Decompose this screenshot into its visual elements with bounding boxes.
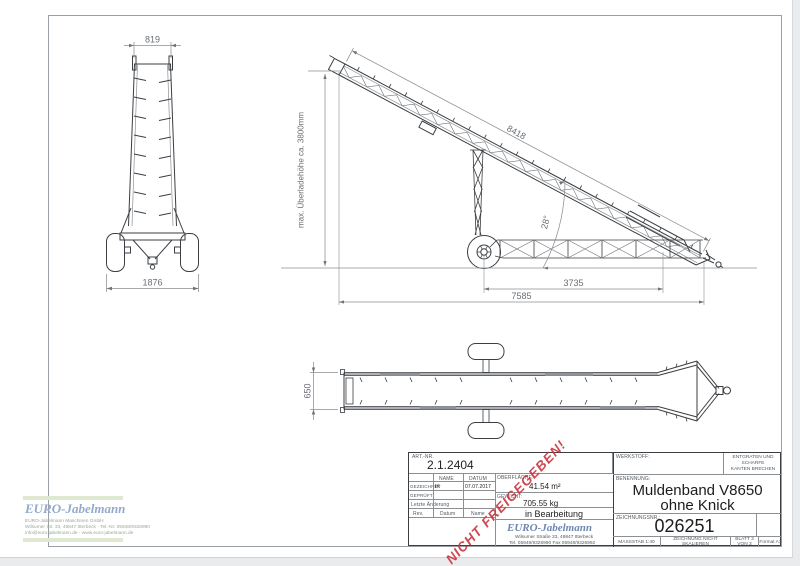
side-belt-length-value: 8418 xyxy=(505,123,527,141)
art-nr-value: 2.1.2404 xyxy=(427,458,474,472)
discharge-hook xyxy=(330,56,335,59)
dimension-7585: 7585 xyxy=(339,72,704,305)
wheel-front-right xyxy=(181,234,199,272)
entgraten-line2: KANTEN BRECHEN xyxy=(731,467,775,472)
watermark-bar-top xyxy=(23,496,123,500)
intake-hopper-side xyxy=(626,205,710,265)
tow-hook-front xyxy=(150,265,154,269)
format-cell: Format A3 xyxy=(759,537,782,547)
gezeichnet-name: IK xyxy=(435,484,440,490)
support-mast xyxy=(470,150,486,235)
chassis-front xyxy=(120,208,185,269)
drawing-number-value: 026251 xyxy=(613,516,756,537)
blatt-value: BLATT 3 VON 3 xyxy=(731,537,758,547)
tail-pulley-top xyxy=(341,370,354,413)
geprueft-label: GEPRÜFT xyxy=(410,493,433,498)
watermark-company: EURO-Jabelmann Maschinen GmbH xyxy=(25,519,104,524)
belt-cleats-top xyxy=(360,378,637,405)
belt-cleats-front xyxy=(134,78,171,216)
col-name-label: NAME xyxy=(439,476,454,482)
belt-band-side xyxy=(339,64,702,265)
part-name-line2: ohne Knick xyxy=(613,497,782,513)
wheel-top-upper xyxy=(468,344,504,360)
datum-label: Datum xyxy=(440,511,455,517)
entgraten-line1: ENTGRATEN UND SCHARFE xyxy=(733,455,774,466)
nicht-skalieren-cell: ZEICHNUNG NICHT SKALIEREN xyxy=(661,537,731,547)
col-datum-label: DATUM xyxy=(469,476,487,482)
sig-col-divider-2 xyxy=(463,474,464,518)
werkstoff-label: WERKSTOFF: xyxy=(616,454,650,460)
dimension-unload-height: max. Überladehöhe ca. 3800mm xyxy=(297,71,343,266)
zeichnungsnr-divider xyxy=(756,514,757,537)
nicht-skalieren-note: ZEICHNUNG NICHT SKALIEREN xyxy=(661,537,730,547)
wheel-top-lower xyxy=(468,423,504,439)
front-view: 819 1876 xyxy=(107,35,199,293)
belt-cleats-side xyxy=(357,67,692,248)
massstab-cell: MASSSTAB 1:40 xyxy=(613,537,661,547)
tb-logo-cell: EURO-Jabelmann Wilsumer Straße 33, 49847… xyxy=(495,520,613,547)
conveyor-rails xyxy=(129,64,177,226)
dimension-650: 650 xyxy=(303,362,339,420)
watermark-address: Wilsumer Str. 33, 49847 Itterbeck · Tel.… xyxy=(25,525,150,530)
title-block: ART.-NR. 2.1.2404 NAME DATUM GEZEICHNET … xyxy=(408,452,781,546)
watermark-web: info@euro-jabelmann.de · www.euro-jabelm… xyxy=(25,531,133,536)
side-total-span-value: 7585 xyxy=(511,291,531,301)
watermark-bar-bottom xyxy=(23,538,123,542)
axle-stub-lower xyxy=(483,410,489,423)
technical-drawing-page: 819 1876 xyxy=(0,0,800,566)
art-nr-cell: ART.-NR. 2.1.2404 xyxy=(409,453,613,474)
gezeichnet-row: GEZEICHNET IK 07.07.2017 xyxy=(409,482,495,491)
discharge-head xyxy=(329,58,346,75)
letzte-aenderung-label: Letzte Änderung xyxy=(411,502,449,508)
werkstoff-cell: WERKSTOFF: ENTGRATEN UND SCHARFE KANTEN … xyxy=(613,453,782,475)
dimension-819: 819 xyxy=(124,35,181,59)
watermark-logo: EURO-Jabelmann xyxy=(25,501,125,517)
wheel-front-left xyxy=(107,234,125,272)
intake-hopper-top xyxy=(658,361,731,422)
gezeichnet-datum: 07.07.2017 xyxy=(465,484,491,490)
dimension-8418: 8418 xyxy=(346,48,710,251)
massstab-value: MASSSTAB 1:40 xyxy=(618,540,654,545)
front-top-width-value: 819 xyxy=(145,35,160,45)
company-logo: EURO-Jabelmann xyxy=(507,522,592,534)
status-value: in Bearbeitung xyxy=(525,509,583,519)
rev-label: Rev. xyxy=(413,511,423,517)
axle-stub-upper xyxy=(483,360,489,373)
zeichnungsnr-cell: ZEICHNUNGSNR.: 026251 xyxy=(613,514,782,537)
front-track-width-value: 1876 xyxy=(142,278,162,288)
dimension-1876: 1876 xyxy=(107,274,199,292)
entgraten-note: ENTGRATEN UND SCHARFE KANTEN BRECHEN xyxy=(723,453,782,475)
side-mid-span-value: 3735 xyxy=(563,278,583,288)
side-incline-angle-value: 28° xyxy=(539,214,552,230)
company-phone: Tel. 05948/9326990 Fax 05948/9326992 xyxy=(509,541,595,547)
belt-band-top xyxy=(344,373,658,410)
side-unload-height-value: max. Überladehöhe ca. 3800mm xyxy=(297,112,306,228)
letzte-aenderung-row: Letzte Änderung xyxy=(409,500,495,509)
top-belt-width-value: 650 xyxy=(303,383,313,398)
blatt-cell: BLATT 3 VON 3 xyxy=(731,537,759,547)
benennung-cell: BENENNUNG: Muldenband V8650 ohne Knick xyxy=(613,475,782,514)
geprueft-row: GEPRÜFT xyxy=(409,491,495,500)
side-view: 8418 max. Überladehöhe ca. 3800mm 28° xyxy=(281,48,757,305)
sig-header-row: NAME DATUM xyxy=(409,474,495,482)
belt-truss-lattice xyxy=(344,67,679,247)
dimension-angle-28: 28° xyxy=(539,181,565,270)
tow-eye-top xyxy=(724,387,731,394)
sig-col-divider-1 xyxy=(433,474,434,518)
gewicht-value: 705.55 kg xyxy=(523,499,558,508)
drive-motor xyxy=(419,121,436,135)
top-view: 650 xyxy=(303,344,731,439)
format-value: Format A3 xyxy=(759,540,781,545)
